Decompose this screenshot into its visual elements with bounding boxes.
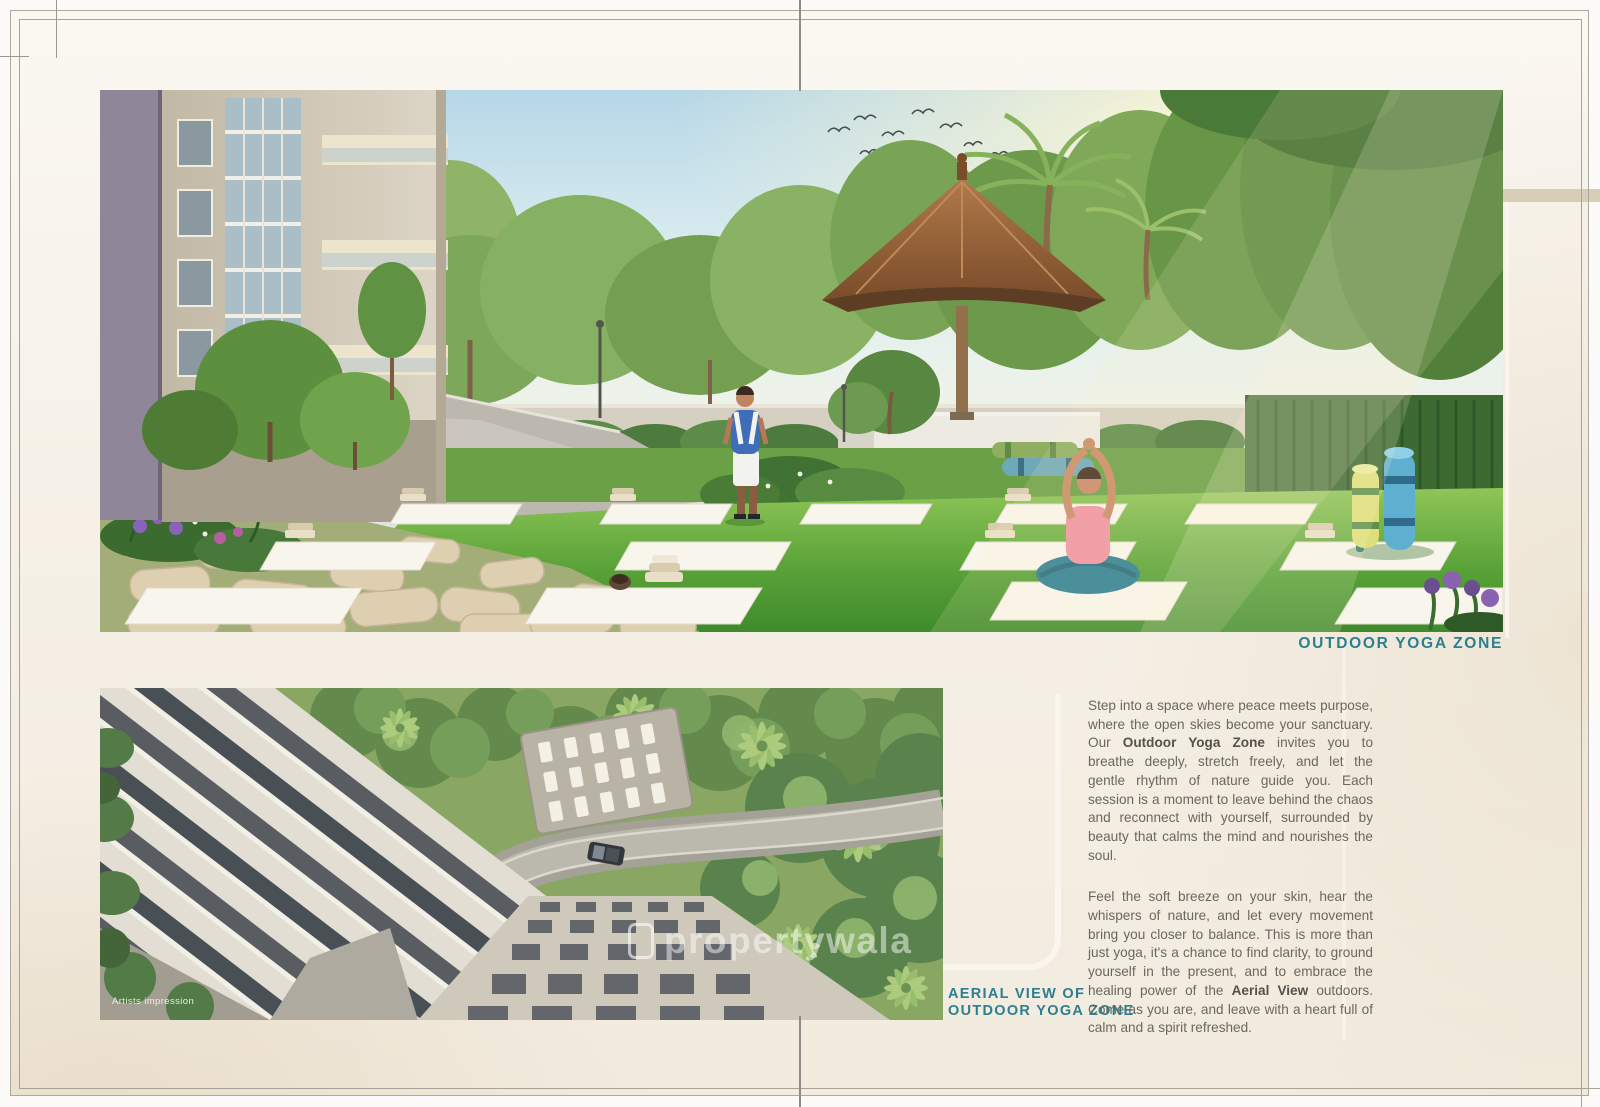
crop-mark-horizontal	[0, 56, 29, 57]
inner-frame-bottom	[19, 1088, 1600, 1089]
inner-frame-right	[1581, 19, 1582, 1107]
inner-frame-left	[19, 19, 20, 1089]
center-fold-mark-top	[799, 0, 801, 91]
outer-frame	[10, 10, 1589, 1096]
crop-mark-vertical	[56, 0, 57, 58]
center-fold-mark-bottom	[799, 1016, 801, 1107]
